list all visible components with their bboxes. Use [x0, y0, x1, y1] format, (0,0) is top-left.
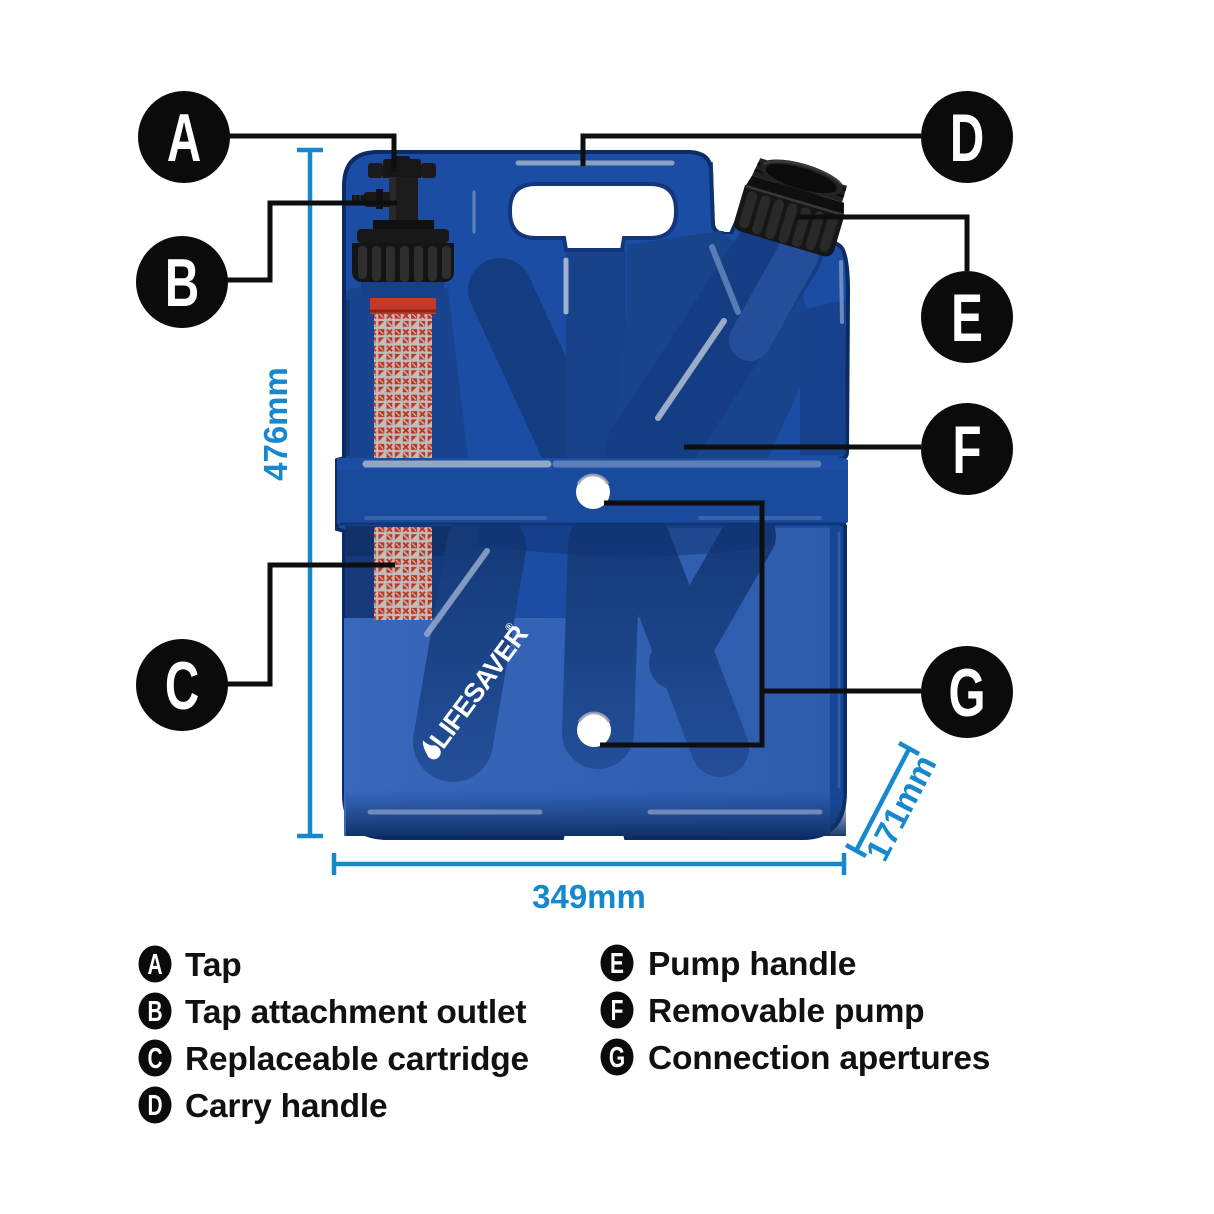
svg-text:Carry handle: Carry handle [185, 1088, 387, 1125]
svg-text:E: E [951, 281, 983, 356]
svg-text:Connection apertures: Connection apertures [648, 1040, 990, 1077]
svg-text:C: C [165, 649, 199, 724]
svg-text:Tap: Tap [185, 947, 241, 984]
svg-text:Tap attachment outlet: Tap attachment outlet [185, 994, 526, 1031]
svg-text:G: G [948, 656, 985, 731]
svg-text:C: C [147, 1043, 162, 1075]
svg-text:B: B [147, 996, 162, 1028]
svg-text:D: D [950, 101, 984, 176]
svg-text:F: F [952, 413, 981, 488]
svg-text:G: G [609, 1042, 625, 1074]
svg-text:Pump handle: Pump handle [648, 946, 856, 983]
svg-text:476mm: 476mm [257, 367, 294, 481]
svg-text:Replaceable cartridge: Replaceable cartridge [185, 1041, 529, 1078]
svg-text:A: A [147, 949, 162, 981]
svg-text:E: E [610, 948, 624, 980]
svg-text:D: D [147, 1090, 162, 1122]
svg-text:B: B [165, 246, 199, 321]
svg-text:F: F [611, 995, 624, 1027]
svg-text:Removable pump: Removable pump [648, 993, 924, 1030]
svg-text:349mm: 349mm [532, 878, 646, 915]
svg-text:A: A [167, 101, 201, 176]
